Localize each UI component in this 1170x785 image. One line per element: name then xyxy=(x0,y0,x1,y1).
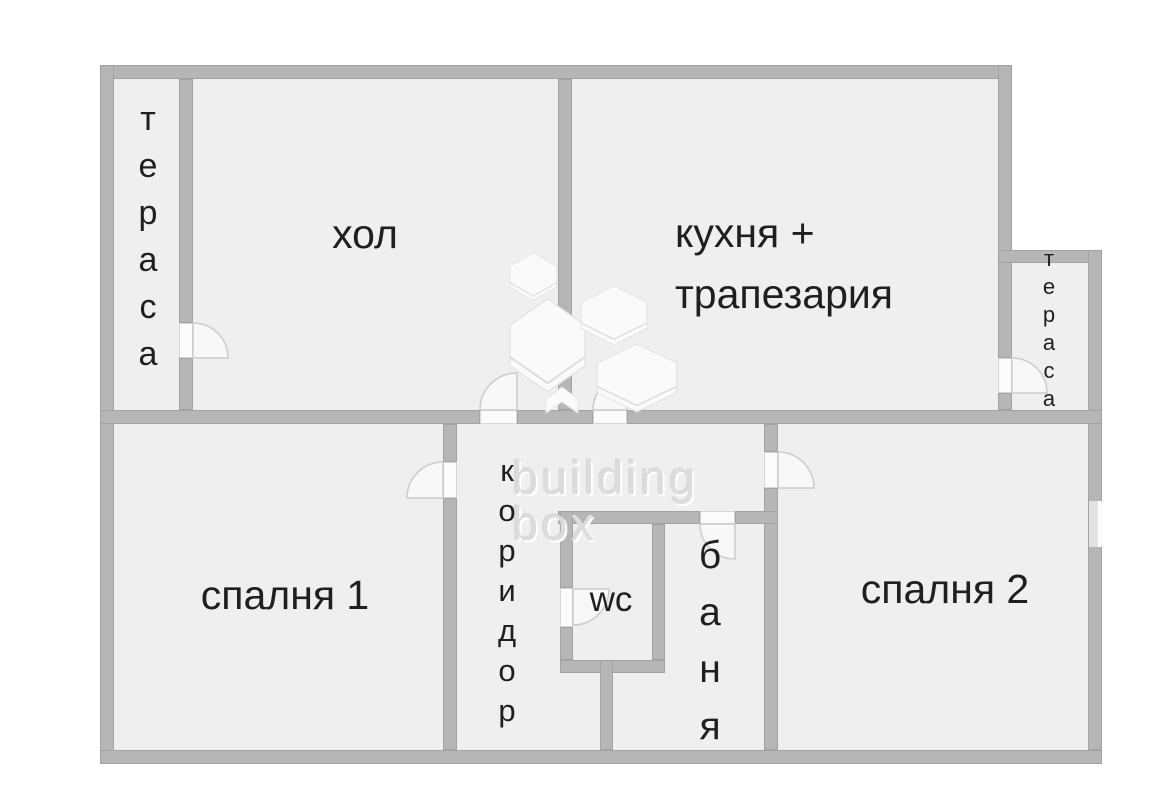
wall-mid-c xyxy=(627,410,1102,424)
wall-bedroom1-corridor-lower xyxy=(443,498,457,750)
living-room-label: хол xyxy=(305,211,425,258)
wall-outer-right-upper xyxy=(998,65,1012,358)
wall-below-wc xyxy=(600,660,613,750)
terrace-right-door xyxy=(998,358,1012,393)
kitchen-label-line1: кухня + xyxy=(675,210,935,257)
terrace-left-door xyxy=(179,323,193,358)
kitchen-door xyxy=(593,410,627,424)
bedroom1-label: спалня 1 xyxy=(180,572,390,619)
bathroom-label: баня xyxy=(689,527,731,755)
wc-door xyxy=(560,588,573,627)
bedroom1-door xyxy=(443,462,457,498)
bathroom-door xyxy=(700,511,735,524)
floor-plan: building box тераса хол кухня + трапезар… xyxy=(0,0,1170,785)
wall-outer-top xyxy=(100,65,1012,79)
wall-outer-bottom xyxy=(100,750,1102,764)
wall-corridor-bedroom2-lower xyxy=(764,488,778,750)
wall-mid-a xyxy=(100,410,480,424)
wall-bedroom1-corridor-upper xyxy=(443,424,457,462)
bedroom2-label: спалня 2 xyxy=(840,566,1050,613)
wall-terrace-left-upper xyxy=(179,79,193,323)
terrace-left-label: тераса xyxy=(128,96,168,378)
wall-wc-right xyxy=(652,524,665,660)
living-room-door xyxy=(480,410,517,424)
wall-terrace-left-lower xyxy=(179,358,193,410)
wall-wc-left-lower xyxy=(560,627,573,660)
wall-outer-right-upper-b xyxy=(998,393,1012,410)
terrace-right-label: тераса xyxy=(1034,245,1064,413)
wc-label: wc xyxy=(580,580,642,620)
wall-outer-right-lower xyxy=(1088,250,1102,750)
corridor-label: коридор xyxy=(487,451,527,731)
wall-hall-kitchen xyxy=(558,79,572,410)
wall-mid-b xyxy=(517,410,593,424)
wall-wc-top-right xyxy=(735,511,778,524)
wall-corridor-bedroom2-upper xyxy=(764,424,778,452)
kitchen-label-line2: трапезария xyxy=(675,271,935,318)
bedroom2-door xyxy=(764,452,778,488)
